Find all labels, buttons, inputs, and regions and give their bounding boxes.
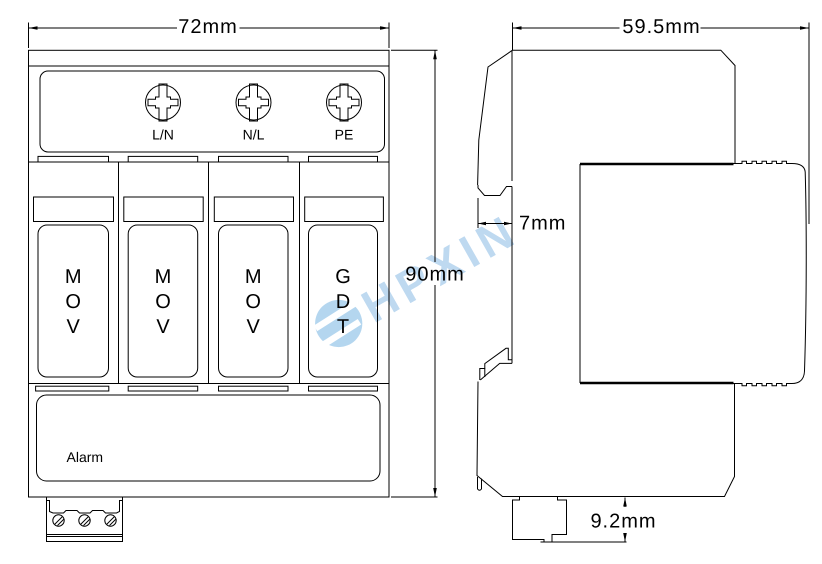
svg-text:O: O [65,291,81,313]
svg-text:T: T [337,316,349,338]
svg-text:M: M [65,266,82,288]
svg-text:9.2mm: 9.2mm [590,511,656,533]
svg-text:72mm: 72mm [178,16,238,38]
svg-text:PE: PE [335,127,354,143]
svg-text:59.5mm: 59.5mm [622,16,700,38]
svg-text:N/L: N/L [243,127,265,143]
svg-text:Alarm: Alarm [67,449,104,465]
svg-text:M: M [155,266,172,288]
svg-text:O: O [155,291,171,313]
svg-text:V: V [156,316,170,338]
svg-text:O: O [245,291,261,313]
svg-text:90mm: 90mm [405,264,465,286]
svg-text:L/N: L/N [152,127,174,143]
svg-text:D: D [336,291,350,313]
svg-text:G: G [335,266,351,288]
svg-text:M: M [245,266,262,288]
svg-text:7mm: 7mm [519,213,566,235]
svg-text:V: V [67,316,81,338]
svg-text:V: V [247,316,261,338]
